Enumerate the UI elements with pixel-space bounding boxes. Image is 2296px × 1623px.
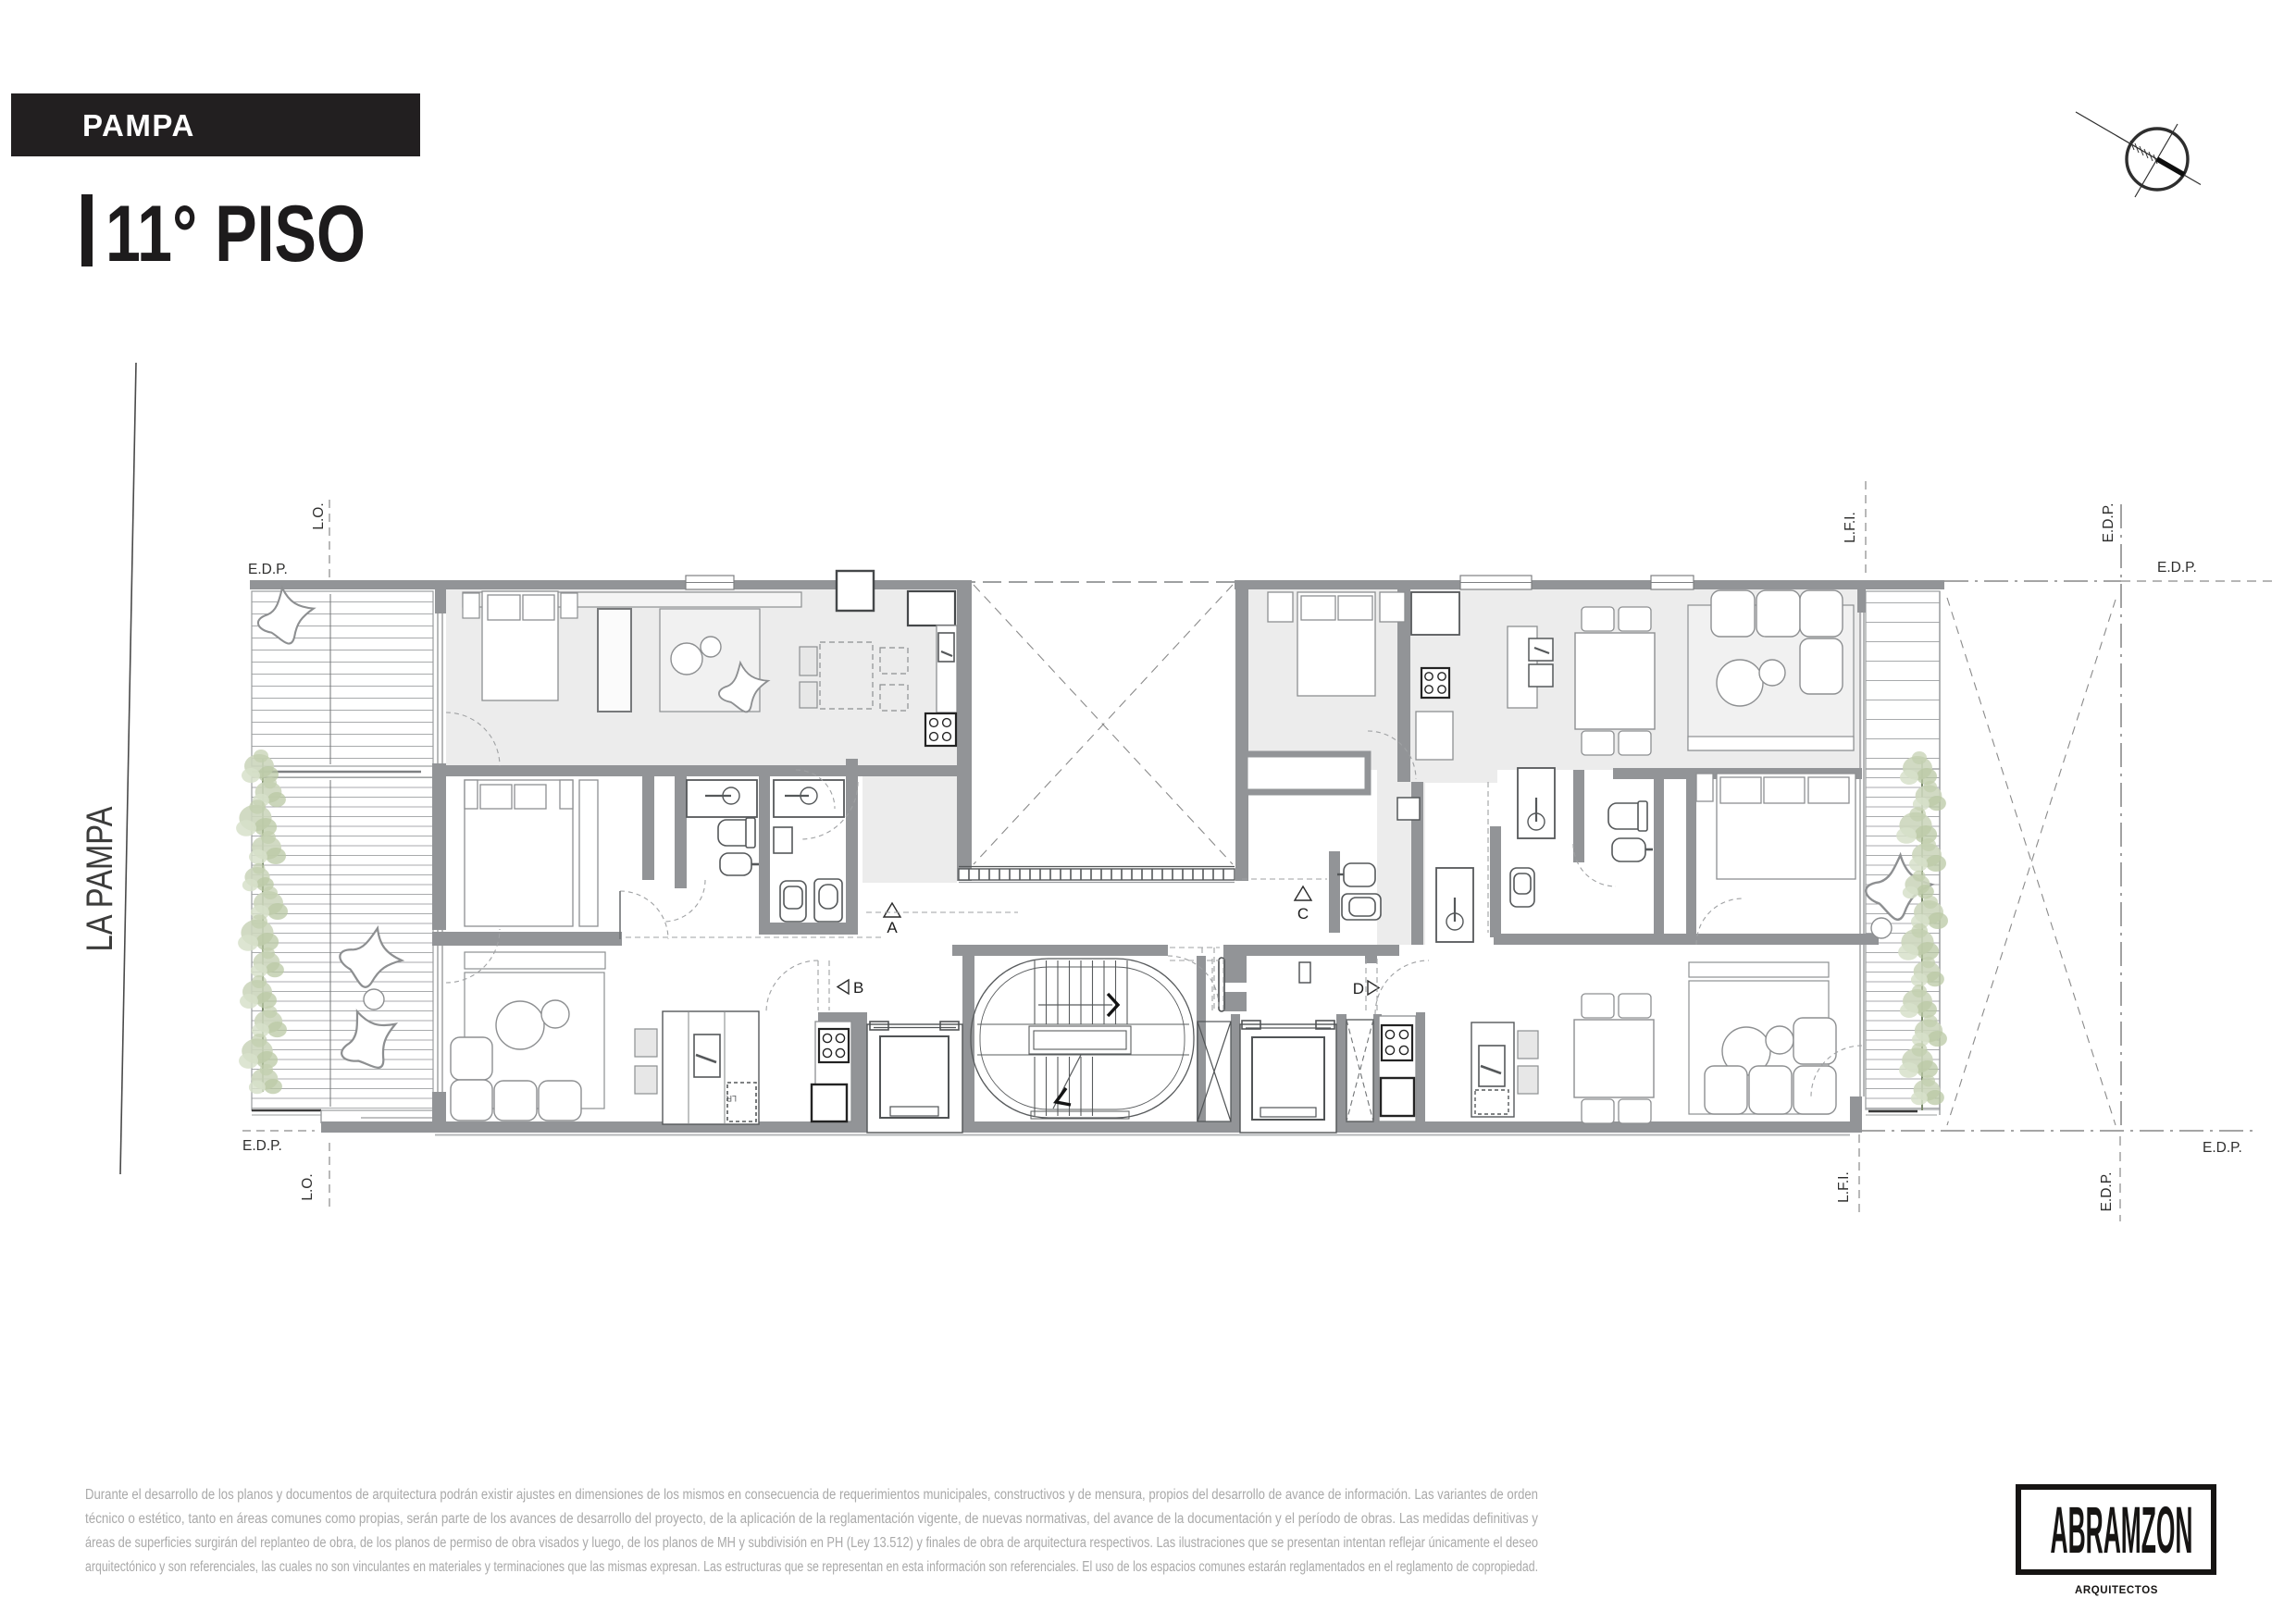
svg-text:PAMPA: PAMPA <box>82 108 195 142</box>
svg-text:E.D.P.: E.D.P. <box>2099 1172 2115 1212</box>
svg-text:L.O.: L.O. <box>300 1173 316 1200</box>
svg-text:E.D.P.: E.D.P. <box>242 1138 282 1154</box>
svg-text:áreas de superficies surgirán: áreas de superficies surgirán del replan… <box>85 1535 1538 1551</box>
svg-text:E.D.P.: E.D.P. <box>248 562 288 577</box>
svg-text:C: C <box>1297 905 1309 923</box>
svg-text:A: A <box>887 919 898 936</box>
svg-text:Durante el desarrollo de los p: Durante el desarrollo de los planos y do… <box>85 1487 1538 1503</box>
svg-text:D: D <box>1353 980 1364 997</box>
svg-text:L.F.I.: L.F.I. <box>1836 1171 1852 1203</box>
svg-text:E.D.P.: E.D.P. <box>2101 503 2116 543</box>
svg-text:L.F.I.: L.F.I. <box>1843 512 1858 543</box>
svg-text:ARQUITECTOS: ARQUITECTOS <box>2075 1585 2158 1596</box>
svg-text:ABRAMZON: ABRAMZON <box>2051 1495 2193 1567</box>
svg-text:LR: LR <box>726 1094 737 1103</box>
svg-text:LA PAMPA: LA PAMPA <box>80 806 120 951</box>
svg-text:B: B <box>853 979 863 997</box>
svg-text:11° PISO: 11° PISO <box>105 190 366 279</box>
svg-text:E.D.P.: E.D.P. <box>2203 1140 2242 1156</box>
svg-text:E.D.P.: E.D.P. <box>2157 560 2197 576</box>
svg-text:L.O.: L.O. <box>311 502 327 529</box>
svg-text:técnico o estético, tanto en á: técnico o estético, tanto en áreas comun… <box>85 1511 1538 1527</box>
svg-text:arquitectónico y son referenci: arquitectónico y son referenciales, las … <box>85 1559 1538 1575</box>
